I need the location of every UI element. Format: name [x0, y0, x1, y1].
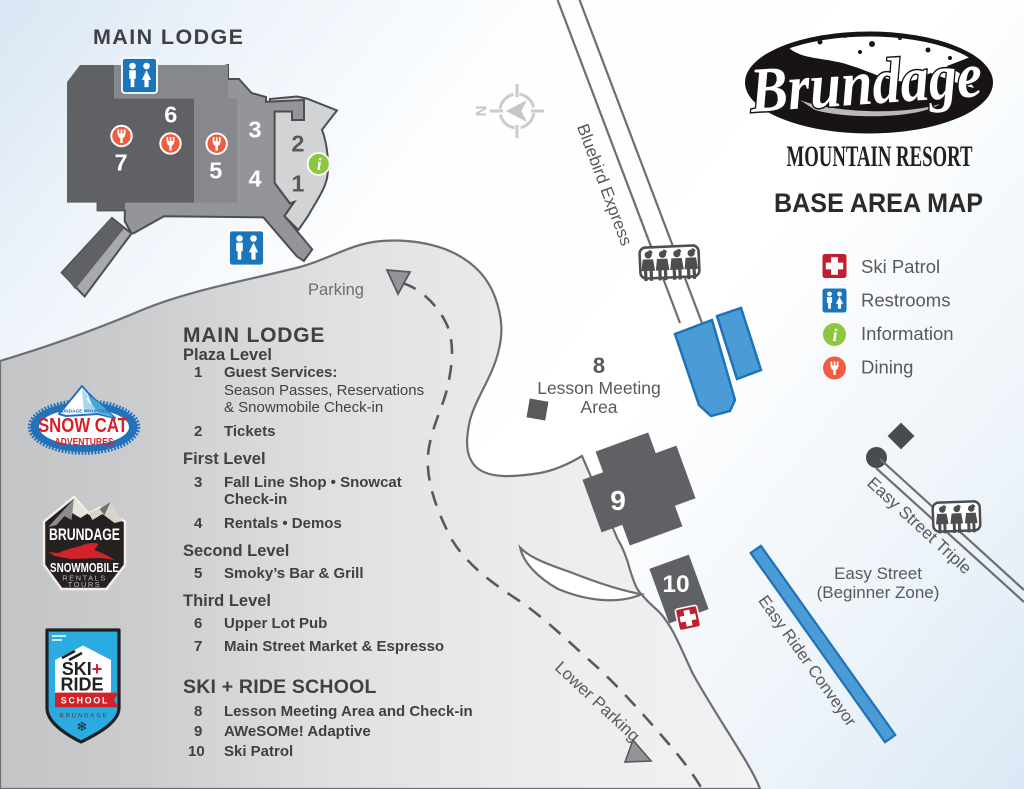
- svg-text:i: i: [317, 155, 322, 174]
- svg-text:BASE AREA MAP: BASE AREA MAP: [774, 188, 983, 218]
- svg-text:(Beginner Zone): (Beginner Zone): [817, 583, 940, 602]
- svg-text:Dining: Dining: [861, 357, 913, 378]
- svg-text:Parking: Parking: [308, 281, 364, 299]
- svg-text:❄: ❄: [77, 719, 88, 734]
- svg-text:8: 8: [593, 353, 605, 378]
- svg-text:N: N: [473, 106, 490, 117]
- svg-text:SCHOOL: SCHOOL: [61, 696, 109, 706]
- svg-text:7: 7: [114, 150, 127, 176]
- svg-text:SNOW CAT: SNOW CAT: [38, 415, 128, 437]
- svg-text:1: 1: [291, 171, 304, 197]
- svg-text:Restrooms: Restrooms: [861, 290, 950, 311]
- svg-text:Ski Patrol: Ski Patrol: [861, 256, 940, 277]
- svg-text:BRUNDAGE MOUNTAIN: BRUNDAGE MOUNTAIN: [55, 409, 110, 415]
- svg-text:5: 5: [209, 158, 222, 184]
- svg-text:9: 9: [610, 485, 626, 516]
- svg-text:TOURS: TOURS: [68, 580, 102, 589]
- svg-text:i: i: [832, 325, 837, 345]
- svg-text:10: 10: [662, 571, 689, 598]
- svg-text:Lesson Meeting: Lesson Meeting: [537, 378, 661, 398]
- svg-text:2: 2: [291, 131, 304, 157]
- svg-text:4: 4: [248, 166, 261, 192]
- svg-text:BRUNDAGE: BRUNDAGE: [49, 526, 120, 544]
- svg-text:Bluebird Express: Bluebird Express: [573, 121, 636, 248]
- svg-text:RIDE: RIDE: [60, 675, 103, 695]
- svg-text:6: 6: [164, 102, 177, 128]
- svg-text:3: 3: [248, 117, 261, 143]
- svg-text:Information: Information: [861, 323, 954, 344]
- svg-text:Area: Area: [581, 397, 618, 417]
- svg-text:MAIN LODGE: MAIN LODGE: [93, 25, 244, 49]
- svg-text:ADVENTURES: ADVENTURES: [55, 437, 114, 448]
- svg-text:Easy Street: Easy Street: [834, 564, 922, 583]
- svg-text:MOUNTAIN RESORT: MOUNTAIN RESORT: [787, 140, 973, 173]
